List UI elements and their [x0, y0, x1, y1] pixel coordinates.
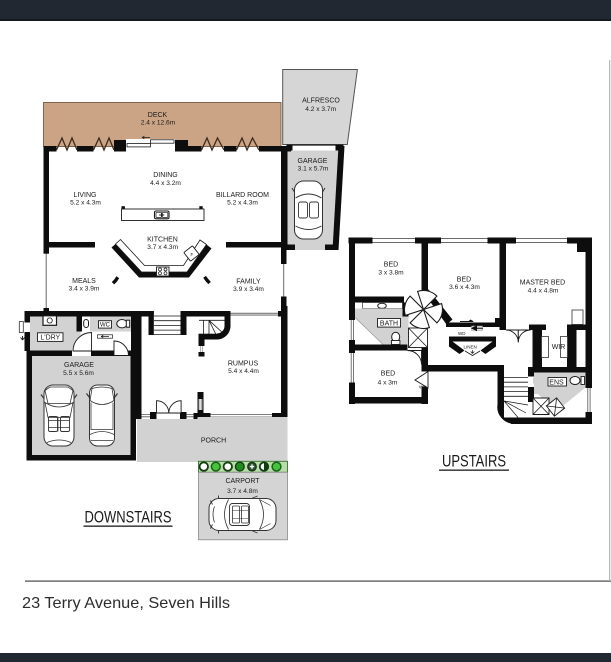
- svg-text:DECK: DECK: [148, 112, 168, 119]
- svg-text:BED: BED: [384, 261, 398, 268]
- svg-text:KITCHEN: KITCHEN: [147, 236, 178, 243]
- svg-text:WIR: WIR: [552, 344, 566, 351]
- svg-text:L'DRY: L'DRY: [40, 335, 60, 342]
- svg-text:3.7 x 4.3m: 3.7 x 4.3m: [147, 244, 178, 251]
- svg-text:3.9 x 3.4m: 3.9 x 3.4m: [233, 286, 264, 293]
- svg-text:WC: WC: [100, 323, 111, 329]
- svg-text:CARPORT: CARPORT: [225, 478, 260, 485]
- svg-text:RUMPUS: RUMPUS: [228, 360, 259, 367]
- svg-text:GARAGE: GARAGE: [64, 362, 94, 369]
- svg-text:3.4 x 3.9m: 3.4 x 3.9m: [69, 286, 100, 293]
- svg-text:FAMILY: FAMILY: [236, 278, 261, 285]
- svg-text:ALFRESCO: ALFRESCO: [302, 98, 340, 105]
- svg-text:4.4 x 4.8m: 4.4 x 4.8m: [528, 288, 559, 295]
- svg-text:DOWNSTAIRS: DOWNSTAIRS: [85, 509, 172, 527]
- svg-text:ENS: ENS: [549, 379, 564, 386]
- svg-text:BILLARD ROOM: BILLARD ROOM: [216, 192, 269, 199]
- svg-text:MASTER BED: MASTER BED: [520, 280, 566, 287]
- svg-text:3.6 x 4.3m: 3.6 x 4.3m: [449, 284, 480, 291]
- svg-text:BED: BED: [457, 276, 471, 283]
- svg-text:UPSTAIRS: UPSTAIRS: [442, 453, 506, 471]
- svg-text:5.2 x 4.3m: 5.2 x 4.3m: [70, 199, 101, 206]
- svg-text:3.1 x 5.7m: 3.1 x 5.7m: [298, 166, 329, 173]
- svg-text:GARAGE: GARAGE: [298, 158, 328, 165]
- svg-text:23 Terry Avenue, Seven Hills: 23 Terry Avenue, Seven Hills: [22, 595, 230, 612]
- svg-text:5.5 x 5.6m: 5.5 x 5.6m: [63, 370, 94, 377]
- svg-text:MEALS: MEALS: [72, 278, 96, 285]
- svg-text:4.4 x 3.2m: 4.4 x 3.2m: [150, 180, 181, 187]
- svg-text:5.4 x 4.4m: 5.4 x 4.4m: [228, 368, 259, 375]
- svg-text:4.2 x 3.7m: 4.2 x 3.7m: [305, 106, 336, 113]
- svg-text:WD: WD: [419, 385, 427, 390]
- svg-text:2.4 x 12.6m: 2.4 x 12.6m: [141, 120, 176, 127]
- svg-text:BATH: BATH: [380, 320, 398, 327]
- svg-text:3.7 x 4.8m: 3.7 x 4.8m: [227, 488, 258, 495]
- svg-text:BED: BED: [381, 371, 395, 378]
- svg-text:4 x 3m: 4 x 3m: [378, 379, 398, 386]
- svg-text:PORCH: PORCH: [201, 437, 226, 444]
- svg-text:LIVING: LIVING: [74, 192, 97, 199]
- svg-text:WD: WD: [458, 331, 466, 336]
- svg-text:F: F: [191, 252, 194, 257]
- svg-text:5.2 x 4.3m: 5.2 x 4.3m: [227, 199, 258, 206]
- svg-text:3 x 3.8m: 3 x 3.8m: [378, 269, 404, 276]
- svg-text:LINEN: LINEN: [464, 345, 477, 350]
- svg-text:DINING: DINING: [153, 172, 178, 179]
